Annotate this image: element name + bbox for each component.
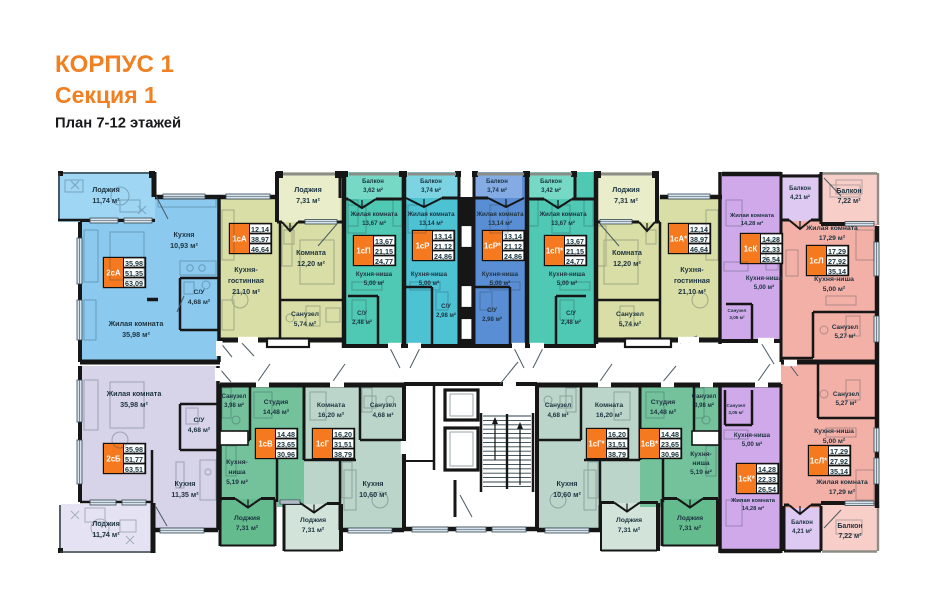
svg-text:4,68 м²: 4,68 м² <box>372 412 393 419</box>
svg-text:7,31 м²: 7,31 м² <box>236 525 259 532</box>
svg-text:Жилая комната: Жилая комната <box>106 389 163 398</box>
svg-text:Лоджия: Лоджия <box>612 185 640 194</box>
svg-text:38,97: 38,97 <box>251 235 269 244</box>
svg-text:Санузел: Санузел <box>728 308 747 313</box>
svg-text:Санузел: Санузел <box>832 324 858 331</box>
svg-text:16,20: 16,20 <box>334 430 352 439</box>
svg-text:14,48 м²: 14,48 м² <box>650 409 677 416</box>
svg-text:4,21 м²: 4,21 м² <box>792 528 812 535</box>
svg-text:5,00 м²: 5,00 м² <box>823 286 846 293</box>
svg-text:С/У: С/У <box>193 289 205 296</box>
svg-text:Жилая комната: Жилая комната <box>805 225 858 232</box>
svg-text:35,98: 35,98 <box>125 445 143 454</box>
svg-text:17,29: 17,29 <box>828 247 846 256</box>
svg-text:Лоджия: Лоджия <box>294 185 322 194</box>
svg-text:Балкон: Балкон <box>420 179 442 185</box>
svg-text:Кухня-ниша: Кухня-ниша <box>411 271 448 278</box>
svg-text:Кухня-ниша: Кухня-ниша <box>356 271 393 278</box>
svg-text:5,00 м²: 5,00 м² <box>823 438 846 445</box>
svg-text:2,98 м²: 2,98 м² <box>482 316 502 323</box>
svg-text:Жилая комната: Жилая комната <box>538 211 587 218</box>
svg-text:5,74 м²: 5,74 м² <box>619 321 642 328</box>
svg-text:Жилая комната: Жилая комната <box>349 211 398 218</box>
svg-text:5,00 м²: 5,00 м² <box>364 280 384 287</box>
svg-text:5,00 м²: 5,00 м² <box>742 441 762 448</box>
svg-text:Балкон: Балкон <box>791 520 813 526</box>
svg-text:Кухня-: Кухня- <box>690 451 711 458</box>
svg-text:2,98 м²: 2,98 м² <box>436 312 456 319</box>
svg-text:5,27 м²: 5,27 м² <box>835 400 856 407</box>
svg-text:35,98 м²: 35,98 м² <box>122 330 150 339</box>
svg-text:Студия: Студия <box>651 399 676 406</box>
svg-text:17,29 м²: 17,29 м² <box>819 235 846 242</box>
svg-text:Комната: Комната <box>296 248 327 257</box>
svg-text:23,65: 23,65 <box>661 440 679 449</box>
svg-text:30,96: 30,96 <box>277 450 295 459</box>
svg-text:7,31 м²: 7,31 м² <box>679 525 702 532</box>
svg-text:1сП*: 1сП* <box>546 247 564 256</box>
svg-text:Кухня-: Кухня- <box>226 459 247 466</box>
svg-text:13,14 м²: 13,14 м² <box>419 220 443 227</box>
svg-text:21,15: 21,15 <box>375 247 393 256</box>
svg-text:Балкон: Балкон <box>837 523 862 530</box>
svg-text:Кухня: Кухня <box>173 230 194 239</box>
svg-text:План 7-12 этажей: План 7-12 этажей <box>55 116 181 132</box>
svg-text:17,29: 17,29 <box>830 447 848 456</box>
svg-text:гостинная: гостинная <box>228 276 264 285</box>
svg-text:7,22 м²: 7,22 м² <box>837 198 861 205</box>
svg-text:13,67 м²: 13,67 м² <box>551 220 575 227</box>
svg-text:Кухня-ниша: Кухня-ниша <box>734 432 771 439</box>
svg-text:38,79: 38,79 <box>334 450 352 459</box>
svg-text:31,51: 31,51 <box>608 440 626 449</box>
svg-text:10,60 м²: 10,60 м² <box>359 490 387 499</box>
svg-text:1сП: 1сП <box>356 247 371 256</box>
svg-text:Кухня: Кухня <box>556 479 577 488</box>
svg-text:Санузел: Санузел <box>727 403 746 408</box>
svg-text:1сК*: 1сК* <box>738 475 755 484</box>
svg-text:Кухня: Кухня <box>362 479 383 488</box>
svg-text:1сВ*: 1сВ* <box>641 440 659 449</box>
svg-text:ниша: ниша <box>228 469 246 476</box>
svg-text:12,20 м²: 12,20 м² <box>613 259 641 268</box>
svg-text:Кухня-ниша: Кухня-ниша <box>746 275 783 282</box>
svg-text:Санузел: Санузел <box>291 311 319 318</box>
svg-text:31,51: 31,51 <box>334 440 352 449</box>
svg-text:3,05 м²: 3,05 м² <box>729 315 745 320</box>
svg-text:1сА: 1сА <box>232 235 247 244</box>
svg-text:Секция 1: Секция 1 <box>55 82 157 108</box>
svg-text:Балкон: Балкон <box>789 186 811 192</box>
svg-text:Балкон: Балкон <box>362 179 384 185</box>
svg-text:С/У: С/У <box>441 304 451 310</box>
svg-text:Жилая комната: Жилая комната <box>406 211 455 218</box>
svg-text:Жилая комната: Жилая комната <box>815 479 868 486</box>
svg-text:27,92: 27,92 <box>830 457 848 466</box>
svg-text:Лоджия: Лоджия <box>677 515 703 522</box>
svg-text:24,77: 24,77 <box>566 257 584 266</box>
svg-text:Кухня: Кухня <box>174 479 195 488</box>
svg-text:24,86: 24,86 <box>504 252 522 261</box>
svg-text:10,60 м²: 10,60 м² <box>553 490 581 499</box>
svg-text:1сК: 1сК <box>744 245 758 254</box>
svg-text:Санузел: Санузел <box>222 394 247 400</box>
svg-text:14,28 м²: 14,28 м² <box>742 505 764 512</box>
svg-text:5,19 м²: 5,19 м² <box>690 469 713 476</box>
svg-text:Жилая комната: Жилая комната <box>108 319 165 328</box>
svg-text:Лоджия: Лоджия <box>300 517 326 524</box>
svg-text:21,15: 21,15 <box>566 247 584 256</box>
svg-text:3,74 м²: 3,74 м² <box>421 187 441 194</box>
svg-text:63,51: 63,51 <box>125 465 143 474</box>
svg-text:гостинная: гостинная <box>674 276 710 285</box>
svg-text:7,31 м²: 7,31 м² <box>618 527 641 534</box>
svg-text:13,67: 13,67 <box>375 237 393 246</box>
svg-text:Балкон: Балкон <box>540 179 562 185</box>
svg-text:Кухня-ниша: Кухня-ниша <box>814 276 854 283</box>
svg-text:14,48: 14,48 <box>661 430 679 439</box>
svg-text:27,92: 27,92 <box>828 257 846 266</box>
svg-text:14,48: 14,48 <box>277 430 295 439</box>
svg-text:14,48 м²: 14,48 м² <box>263 409 290 416</box>
svg-text:17,29 м²: 17,29 м² <box>829 489 856 496</box>
svg-text:14,28 м²: 14,28 м² <box>741 220 763 227</box>
svg-text:С/У: С/У <box>193 417 205 424</box>
svg-text:24,77: 24,77 <box>375 257 393 266</box>
svg-text:Лоджия: Лоджия <box>92 185 120 194</box>
svg-text:21,12: 21,12 <box>504 242 522 251</box>
svg-text:4,21 м²: 4,21 м² <box>790 194 810 201</box>
svg-text:Жилая комната: Жилая комната <box>729 213 775 219</box>
svg-text:35,98: 35,98 <box>125 259 143 268</box>
svg-text:7,31 м²: 7,31 м² <box>302 527 325 534</box>
svg-text:11,35 м²: 11,35 м² <box>171 490 199 499</box>
svg-text:38,79: 38,79 <box>608 450 626 459</box>
svg-text:5,00 м²: 5,00 м² <box>490 280 510 287</box>
svg-text:1сР*: 1сР* <box>484 242 502 251</box>
svg-text:16,20 м²: 16,20 м² <box>596 412 623 419</box>
svg-text:46,64: 46,64 <box>690 245 708 254</box>
svg-text:Студия: Студия <box>264 399 289 406</box>
svg-text:24,86: 24,86 <box>434 252 452 261</box>
svg-text:1сЛ*: 1сЛ* <box>810 457 828 466</box>
svg-text:2сА: 2сА <box>106 269 121 278</box>
svg-text:1сЛ: 1сЛ <box>809 257 823 266</box>
svg-text:3,42 м²: 3,42 м² <box>541 187 561 194</box>
svg-text:16,20: 16,20 <box>608 430 626 439</box>
svg-text:Кухня-ниша: Кухня-ниша <box>549 271 586 278</box>
svg-text:13,14: 13,14 <box>434 232 452 241</box>
svg-text:1сГ*: 1сГ* <box>588 440 605 449</box>
svg-text:46,64: 46,64 <box>251 245 269 254</box>
svg-text:4,68 м²: 4,68 м² <box>547 412 568 419</box>
svg-text:35,14: 35,14 <box>830 467 848 476</box>
svg-text:3,74 м²: 3,74 м² <box>487 187 507 194</box>
svg-text:Жилая комната: Жилая комната <box>730 498 776 504</box>
svg-text:35,14: 35,14 <box>828 267 846 276</box>
svg-text:38,97: 38,97 <box>690 235 708 244</box>
svg-text:С/У: С/У <box>566 311 576 317</box>
svg-text:12,14: 12,14 <box>251 225 269 234</box>
svg-text:Кухня-: Кухня- <box>234 265 258 274</box>
svg-text:23,65: 23,65 <box>277 440 295 449</box>
svg-text:5,00 м²: 5,00 м² <box>754 284 774 291</box>
svg-text:51,77: 51,77 <box>125 455 143 464</box>
svg-text:ниша: ниша <box>692 460 710 467</box>
svg-text:Кухня-ниша: Кухня-ниша <box>482 271 519 278</box>
svg-text:Лоджия: Лоджия <box>234 515 260 522</box>
svg-text:26,54: 26,54 <box>758 485 776 494</box>
svg-text:Комната: Комната <box>317 402 345 409</box>
svg-text:Лоджия: Лоджия <box>616 517 642 524</box>
svg-text:Кухня-: Кухня- <box>680 265 704 274</box>
svg-text:16,20 м²: 16,20 м² <box>318 412 345 419</box>
svg-text:1сВ: 1сВ <box>258 440 273 449</box>
svg-text:Жилая комната: Жилая комната <box>475 211 524 218</box>
svg-text:21,12: 21,12 <box>434 242 452 251</box>
svg-text:22,33: 22,33 <box>758 475 776 484</box>
svg-text:2сБ: 2сБ <box>106 455 121 464</box>
svg-text:7,31 м²: 7,31 м² <box>614 196 638 205</box>
svg-text:1сР: 1сР <box>416 242 430 251</box>
svg-text:1сГ: 1сГ <box>316 440 330 449</box>
svg-text:3,62 м²: 3,62 м² <box>363 187 383 194</box>
svg-text:Лоджия: Лоджия <box>92 519 120 528</box>
svg-text:7,31 м²: 7,31 м² <box>296 196 320 205</box>
svg-text:12,14: 12,14 <box>690 225 708 234</box>
svg-text:26,54: 26,54 <box>762 255 780 264</box>
svg-text:4,68 м²: 4,68 м² <box>188 299 211 306</box>
svg-text:5,19 м²: 5,19 м² <box>226 479 249 486</box>
svg-text:13,67: 13,67 <box>566 237 584 246</box>
svg-text:3,05 м²: 3,05 м² <box>728 410 744 415</box>
svg-text:21,10 м²: 21,10 м² <box>678 287 706 296</box>
svg-text:12,20 м²: 12,20 м² <box>297 259 325 268</box>
svg-text:5,74 м²: 5,74 м² <box>294 321 317 328</box>
svg-text:14,28: 14,28 <box>758 465 776 474</box>
svg-text:КОРПУС 1: КОРПУС 1 <box>55 51 174 78</box>
svg-text:22,33: 22,33 <box>762 245 780 254</box>
svg-text:Балкон: Балкон <box>486 179 508 185</box>
svg-text:3,98 м²: 3,98 м² <box>224 402 244 409</box>
svg-text:10,93 м²: 10,93 м² <box>170 241 198 250</box>
svg-text:Кухня-ниша: Кухня-ниша <box>814 428 854 435</box>
svg-text:51,35: 51,35 <box>125 269 143 278</box>
svg-text:Комната: Комната <box>595 402 623 409</box>
svg-text:1сА*: 1сА* <box>670 235 688 244</box>
svg-text:4,68 м²: 4,68 м² <box>188 427 211 434</box>
svg-text:5,00 м²: 5,00 м² <box>419 280 439 287</box>
svg-text:30,96: 30,96 <box>661 450 679 459</box>
